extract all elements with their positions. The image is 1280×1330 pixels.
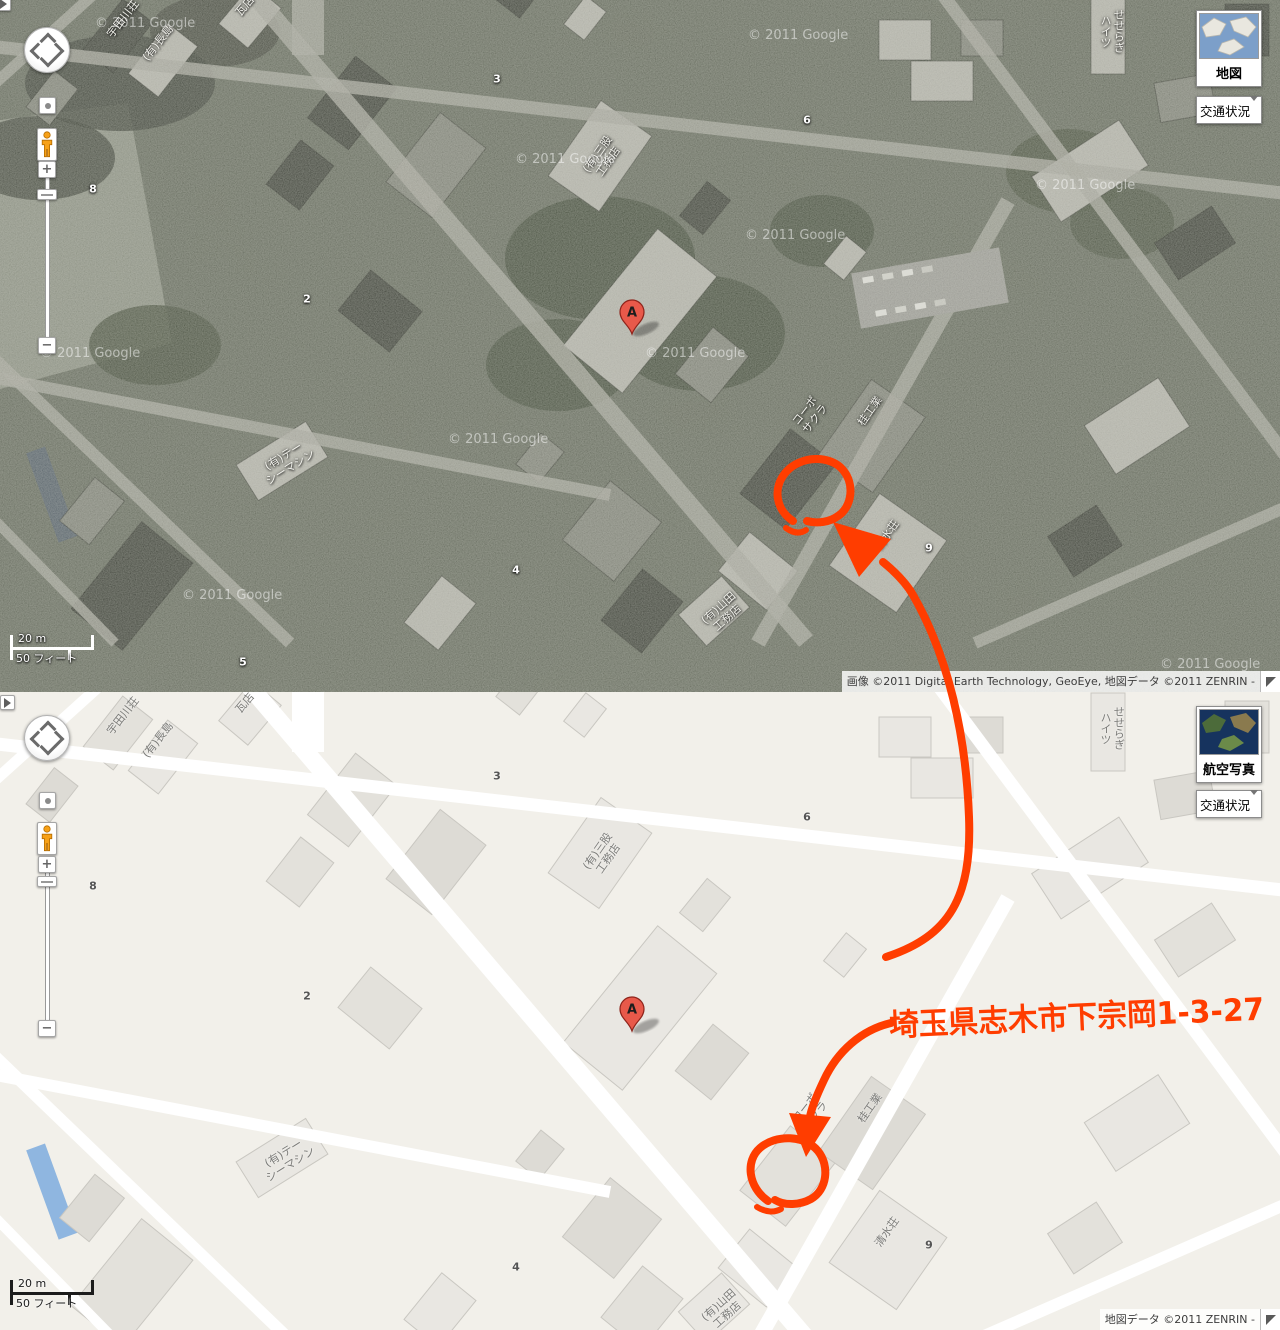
marker-letter: A (627, 306, 637, 321)
map-canvas-roadmap[interactable]: A 宇田川荘(有)長島瓦店せせらぎ ハイツ(有)三股 工務店コーポ サクラ桂工業… (0, 692, 1280, 1330)
minus-icon: − (42, 1021, 53, 1036)
traffic-button[interactable]: 交通状況 (1196, 96, 1262, 124)
plus-icon: + (42, 857, 53, 872)
pegman-icon (40, 825, 54, 852)
handle-icon (41, 881, 53, 883)
zoom-out-button[interactable]: − (38, 1020, 56, 1037)
copyright-text: 地図データ ©2011 ZENRIN - (1100, 1309, 1260, 1330)
recenter-button[interactable] (39, 97, 56, 114)
dot-icon (45, 798, 51, 804)
chevron-down-icon (1250, 790, 1258, 814)
chevron-right-icon (0, 0, 7, 9)
map-type-button-map[interactable]: 地図 (1196, 10, 1262, 87)
recenter-button[interactable] (39, 792, 56, 809)
map-type-label: 地図 (1197, 61, 1261, 86)
pan-control[interactable] (24, 27, 70, 73)
map-canvas-aerial[interactable]: A 宇田川荘(有)長島瓦店せせらぎ ハイツ(有)三股 工務店コーポ サクラ桂工業… (0, 0, 1280, 692)
traffic-button[interactable]: 交通状況 (1196, 790, 1262, 818)
zoom-out-button[interactable]: − (38, 337, 56, 354)
google-maps-comparison-screenshot: A 宇田川荘(有)長島瓦店せせらぎ ハイツ(有)三股 工務店コーポ サクラ桂工業… (0, 0, 1280, 1330)
minimap-roadmap-icon (1199, 13, 1259, 59)
zoom-slider-track[interactable] (45, 864, 50, 1024)
pegman-button[interactable] (37, 822, 57, 855)
chevron-right-icon (4, 698, 11, 708)
zoom-in-button[interactable]: + (38, 161, 56, 178)
arrow-nw-icon (1266, 1315, 1276, 1325)
minimap-satellite-icon (1199, 709, 1259, 755)
zoom-slider-handle[interactable] (37, 189, 57, 200)
plus-icon: + (42, 162, 53, 177)
collapse-attribution-button[interactable] (1260, 671, 1280, 692)
copyright-bar-roadmap: 地図データ ©2011 ZENRIN - (1100, 1309, 1280, 1330)
traffic-label: 交通状況 (1200, 798, 1250, 813)
marker-letter: A (627, 1003, 637, 1018)
map-type-label: 航空写真 (1197, 757, 1261, 782)
zoom-slider-handle[interactable] (37, 876, 57, 887)
pegman-icon (40, 131, 54, 158)
copyright-text: 画像 ©2011 Digital Earth Technology, GeoEy… (842, 671, 1260, 692)
collapse-attribution-button[interactable] (1260, 1309, 1280, 1330)
zoom-in-button[interactable]: + (38, 856, 56, 873)
arrow-nw-icon (1266, 677, 1276, 687)
pan-control[interactable] (24, 715, 70, 761)
copyright-bar-aerial: 画像 ©2011 Digital Earth Technology, GeoEy… (842, 671, 1280, 692)
minus-icon: − (42, 338, 53, 353)
roadmap-imagery: A (0, 692, 1280, 1330)
pegman-button[interactable] (37, 128, 57, 161)
sidebar-expand-button[interactable] (0, 0, 11, 11)
traffic-label: 交通状況 (1200, 104, 1250, 119)
map-type-button-satellite[interactable]: 航空写真 (1196, 706, 1262, 783)
handle-icon (41, 194, 53, 196)
aerial-imagery: A (0, 0, 1280, 692)
chevron-down-icon (1250, 96, 1258, 120)
sidebar-expand-button[interactable] (0, 695, 15, 710)
dot-icon (45, 103, 51, 109)
